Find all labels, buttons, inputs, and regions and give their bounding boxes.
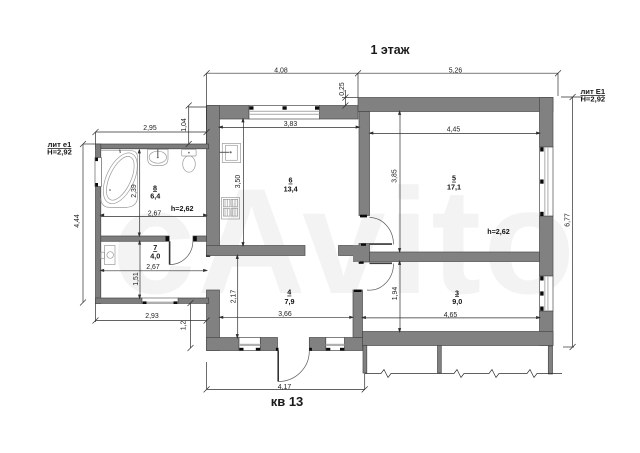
- svg-text:4,0: 4,0: [150, 251, 160, 260]
- svg-text:2,39: 2,39: [131, 184, 138, 198]
- svg-text:h=2,62: h=2,62: [171, 204, 194, 213]
- svg-text:Н=2,92: Н=2,92: [47, 148, 72, 157]
- svg-text:1 этаж: 1 этаж: [370, 43, 409, 57]
- svg-text:4,65: 4,65: [444, 312, 458, 319]
- svg-text:1,51: 1,51: [133, 272, 140, 286]
- svg-text:2,67: 2,67: [148, 210, 162, 217]
- svg-text:4,44: 4,44: [74, 214, 81, 228]
- svg-text:4,17: 4,17: [278, 384, 292, 391]
- svg-text:h=2,62: h=2,62: [487, 227, 510, 236]
- svg-text:3,85: 3,85: [392, 169, 399, 183]
- svg-text:кв 13: кв 13: [271, 394, 304, 409]
- svg-text:6,77: 6,77: [565, 213, 572, 227]
- svg-text:6,4: 6,4: [150, 191, 160, 200]
- svg-text:3,66: 3,66: [278, 311, 292, 318]
- svg-text:3,50: 3,50: [235, 175, 242, 189]
- svg-text:1,04: 1,04: [181, 118, 188, 132]
- svg-text:4,08: 4,08: [274, 67, 288, 74]
- svg-text:4: 4: [287, 288, 291, 297]
- svg-text:1,94: 1,94: [392, 287, 399, 301]
- svg-text:0,25: 0,25: [339, 82, 346, 96]
- svg-text:3,83: 3,83: [284, 121, 298, 128]
- svg-text:5,26: 5,26: [449, 67, 463, 74]
- svg-text:Н=2,92: Н=2,92: [580, 95, 605, 104]
- svg-text:1,2: 1,2: [181, 321, 188, 331]
- svg-text:9,0: 9,0: [452, 297, 462, 306]
- svg-text:6: 6: [289, 176, 293, 185]
- svg-text:13,4: 13,4: [284, 184, 298, 193]
- svg-text:3: 3: [455, 288, 459, 297]
- svg-text:2,17: 2,17: [231, 290, 238, 304]
- svg-text:2,67: 2,67: [146, 264, 160, 271]
- svg-text:7,9: 7,9: [285, 297, 295, 306]
- svg-text:2,93: 2,93: [145, 313, 159, 320]
- svg-text:2,95: 2,95: [143, 125, 157, 132]
- svg-text:17,1: 17,1: [447, 182, 461, 191]
- svg-text:4,45: 4,45: [447, 127, 461, 134]
